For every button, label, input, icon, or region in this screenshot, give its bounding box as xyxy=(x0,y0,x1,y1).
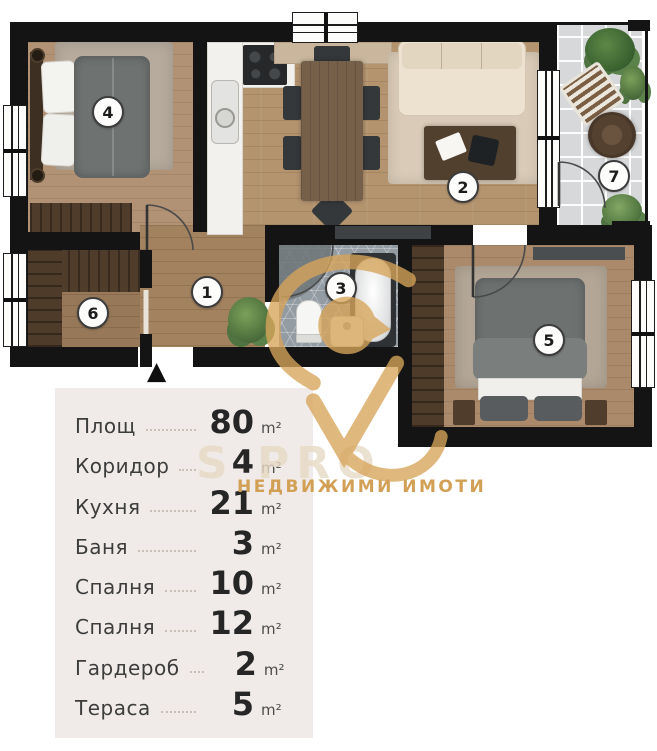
bed5-nightstand-left xyxy=(453,400,475,425)
sofa-back-cushions xyxy=(402,43,522,69)
legend-area-unit: m² xyxy=(261,620,291,638)
entrance-arrow: ▲ xyxy=(147,358,166,383)
legend-area-value: 3 xyxy=(206,527,254,559)
terrace-corner-bottom-right xyxy=(612,221,650,232)
legend-area-unit: m² xyxy=(261,459,291,477)
wall-wardrobe-right-upper xyxy=(140,250,152,288)
wall-bedroom4-kitchen xyxy=(193,42,207,232)
legend-row: Коридор4m² xyxy=(75,446,291,478)
area-legend-panel: Площ80m² Коридор4m² Кухня21m² Баня3m² Сп… xyxy=(55,388,313,738)
legend-row: Кухня21m² xyxy=(75,487,291,519)
room-badge-1: 1 xyxy=(191,276,223,308)
bathroom-sink xyxy=(330,316,364,347)
room-badge-7: 7 xyxy=(598,160,630,192)
tv-console xyxy=(335,226,431,239)
room-number: 5 xyxy=(543,331,554,350)
wall-bedroom5-right-upper xyxy=(634,232,652,282)
window-bedroom4-upper xyxy=(3,105,27,197)
leader-dots xyxy=(165,630,196,632)
legend-row: Площ80m² xyxy=(75,406,291,438)
room-badge-5: 5 xyxy=(533,324,565,356)
room-number: 4 xyxy=(102,103,113,122)
entrance-arrow-glyph: ▲ xyxy=(147,356,166,385)
bed4-post-top xyxy=(30,48,45,63)
legend-room-label: Гардероб xyxy=(75,656,180,680)
wardrobe-shelves-left xyxy=(28,250,62,347)
terrace-door-unit xyxy=(537,70,560,208)
toilet-tank xyxy=(296,334,322,343)
window-bedroom4-lower xyxy=(3,253,27,347)
legend-area-value: 12 xyxy=(206,607,254,639)
kitchen-sink-basin xyxy=(215,108,235,128)
room-badge-2: 2 xyxy=(447,171,479,203)
leader-dots xyxy=(150,510,196,512)
legend-area-unit: m² xyxy=(261,419,291,437)
wall-living-terrace-upper xyxy=(539,22,557,72)
room-number: 1 xyxy=(201,283,212,302)
wall-bottom-mid xyxy=(193,347,400,367)
leader-dots xyxy=(138,550,196,552)
leader-dots xyxy=(146,429,196,431)
legend-area-value: 80 xyxy=(206,406,254,438)
legend-area-unit: m² xyxy=(264,661,291,679)
legend-area-value: 10 xyxy=(206,567,254,599)
legend-row: Спалня10m² xyxy=(75,567,291,599)
dining-chair-left-2 xyxy=(283,136,302,170)
wall-bathroom-left xyxy=(265,245,279,302)
terrace-edge-right xyxy=(645,22,648,230)
legend-room-label: Баня xyxy=(75,535,128,559)
bedroom5-wardrobe xyxy=(412,245,444,427)
legend-room-label: Спалня xyxy=(75,575,155,599)
coffee-table-decor xyxy=(467,134,499,166)
terrace-plant-right xyxy=(620,66,646,100)
legend-area-unit: m² xyxy=(261,580,291,598)
legend-row: Тераса5m² xyxy=(75,688,291,720)
wall-bedroom5-bottom xyxy=(398,427,652,447)
logo-checkmark xyxy=(313,363,396,453)
legend-area-value: 4 xyxy=(206,446,254,478)
leader-dots xyxy=(179,469,196,471)
bathroom-sink-faucet xyxy=(343,322,351,330)
corridor-plant xyxy=(228,297,270,343)
bed4-pillow-2 xyxy=(41,113,78,167)
room-number: 6 xyxy=(87,304,98,323)
dining-chair-right-2 xyxy=(361,136,380,170)
room-number: 3 xyxy=(335,279,346,298)
dining-chair-right-1 xyxy=(361,86,380,120)
bed4-pillow-1 xyxy=(41,60,78,114)
legend-room-label: Площ xyxy=(75,414,136,438)
legend-area-unit: m² xyxy=(261,500,291,518)
room-badge-3: 3 xyxy=(325,272,357,304)
bed5-pillow-2 xyxy=(534,396,582,421)
room-badge-6: 6 xyxy=(77,297,109,329)
bed5-nightstand-right xyxy=(585,400,607,425)
legend-room-label: Кухня xyxy=(75,495,140,519)
wall-bathroom-bedroom5 xyxy=(398,225,412,447)
leader-dots xyxy=(161,711,196,713)
legend-area-value: 2 xyxy=(214,648,257,680)
legend-row: Гардероб2m² xyxy=(75,648,291,680)
room-number: 7 xyxy=(608,167,619,186)
window-kitchen-top xyxy=(292,12,358,43)
legend-room-label: Коридор xyxy=(75,454,169,478)
legend-row: Баня3m² xyxy=(75,527,291,559)
bedroom5-tv-dresser xyxy=(533,247,625,260)
floor-plan-page: 1 2 3 4 5 6 7 ▲ Площ80m² Коридор4m² Кухн… xyxy=(0,0,657,751)
window-bedroom5 xyxy=(631,280,655,388)
legend-room-label: Тераса xyxy=(75,696,151,720)
wall-top xyxy=(10,22,557,42)
room-number: 2 xyxy=(457,178,468,197)
leader-dots xyxy=(190,671,204,673)
room-badge-4: 4 xyxy=(92,96,124,128)
legend-area-unit: m² xyxy=(261,701,291,719)
wall-bedroom4-corridor xyxy=(10,232,140,250)
leader-dots xyxy=(165,590,196,592)
terrace-corner-top-right xyxy=(628,20,650,31)
bed5-pillow-1 xyxy=(480,396,528,421)
legend-area-value: 5 xyxy=(206,688,254,720)
bed5-duvet-fold xyxy=(473,338,587,380)
wall-bottom-left xyxy=(10,347,138,367)
legend-area-unit: m² xyxy=(261,540,291,558)
dining-table xyxy=(301,61,363,201)
legend-area-value: 21 xyxy=(206,487,254,519)
dining-chair-left-1 xyxy=(283,86,302,120)
legend-row: Спалня12m² xyxy=(75,607,291,639)
terrace-round-table xyxy=(588,112,636,158)
bed4-post-bottom xyxy=(30,168,45,183)
legend-room-label: Спалня xyxy=(75,615,155,639)
